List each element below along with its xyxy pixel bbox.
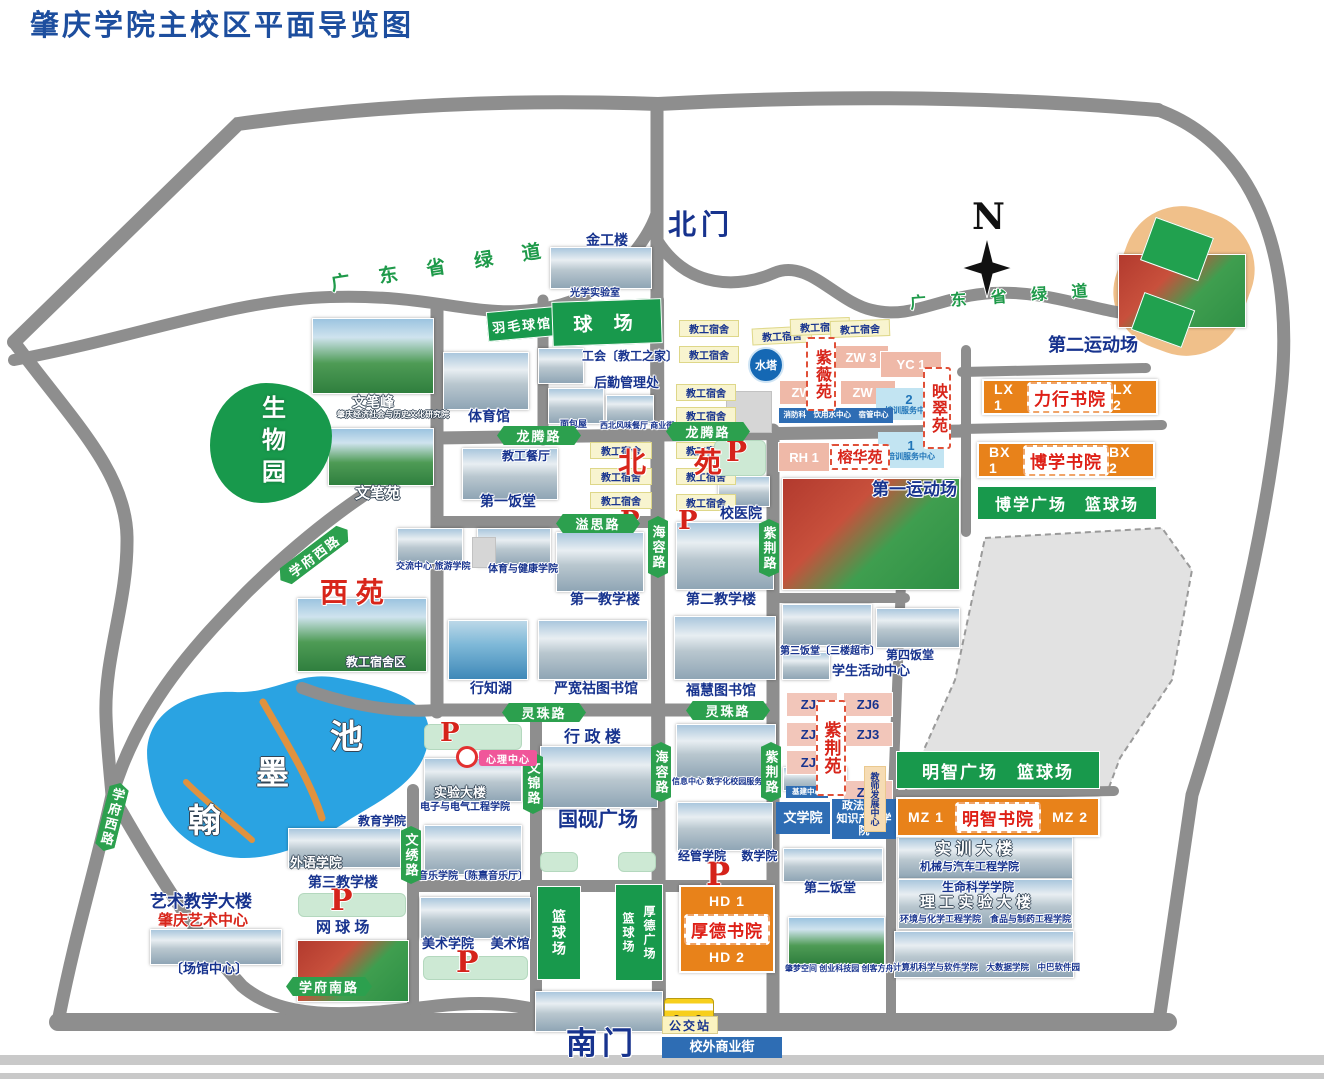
label-jixie: 机械与汽车工程学院	[920, 862, 1019, 874]
road-sign-wenxiulu: 文绣路	[401, 826, 421, 884]
area-boxue-square: 博学广场 篮球场	[977, 486, 1157, 520]
compass-north-label: N	[972, 196, 1005, 238]
road-sign-lingzhulu-2: 灵珠路	[686, 701, 770, 720]
label-canteen3: 第三饭堂〔三楼超市〕	[780, 647, 880, 658]
photo-music	[424, 825, 522, 875]
college-houde: HD 1厚德书院HD 2	[679, 885, 775, 973]
training-block-label: 培训服务中心	[887, 453, 935, 461]
label-xiaofang: 消防科 饮用水中心 宿管中心	[779, 408, 893, 423]
label-teaching3: 第三教学楼	[308, 875, 378, 890]
label-lake-han: 翰	[188, 804, 221, 839]
parking-yisi-2: P	[678, 508, 698, 534]
label-guoyan: 国砚广场	[558, 810, 638, 831]
label-tennis: 网 球 场	[316, 920, 369, 936]
label-teacher-dev: 教师发展中心	[864, 766, 886, 832]
parking-meishu: P	[456, 948, 479, 978]
photo-zhaomeng	[788, 917, 885, 965]
photo-shangyejie	[606, 395, 654, 424]
label-shixun: 实 训 大 楼	[935, 842, 1012, 859]
college-block-code: HD 2	[709, 949, 745, 965]
photo-jingonglou	[550, 247, 652, 289]
label-stadium1: 第一运动场	[872, 481, 957, 499]
road-sign-yisilu: 溢思路	[556, 514, 640, 533]
photo-teaching1	[556, 532, 644, 592]
psych-center-label: 心理中心	[479, 750, 537, 766]
road-west-curve	[14, 342, 127, 795]
road-sign-xuefunanlu: 学府南路	[286, 977, 372, 996]
label-fuhui: 福慧图书馆	[686, 683, 756, 698]
water-tower: 水塔	[748, 347, 784, 383]
faculty-dorm-label-2: 教工宿舍	[679, 346, 739, 363]
biology-garden-label: 生物园	[254, 395, 289, 491]
label-meishu: 美术学院 美术馆	[422, 937, 530, 951]
road-mingzhi	[893, 791, 1114, 795]
faculty-dorm-label-7: 教工宿舍	[676, 407, 736, 424]
college-block-code: LX 2	[1113, 381, 1146, 413]
photo-canteen4	[876, 608, 960, 648]
label-yanjiuyuan: 肇庆经济社会与历史文化研究院	[337, 411, 449, 419]
label-lake-mo: 墨	[256, 756, 289, 791]
photo-tiyuguan	[443, 352, 529, 410]
college-block-code: BX 1	[989, 444, 1023, 476]
road-sign-longtenglu-1: 龙腾路	[497, 426, 581, 445]
faculty-dorm-label-6: 教工宿舍	[676, 384, 736, 401]
label-optics-lab: 光学实验室	[570, 289, 620, 300]
college-block-code: MZ 2	[1052, 809, 1088, 825]
area-basketball-houde: 篮球场厚德广场	[615, 884, 663, 981]
campus-map: 肇庆学院主校区平面导览图 N 生物园羽毛球馆球 场博学广场 篮球场明智广场 篮球…	[0, 0, 1324, 1080]
college-block-code: BX 2	[1109, 444, 1143, 476]
label-sport-health: 体育与健康学院	[488, 565, 558, 576]
label-stadium2: 第二运动场	[1048, 336, 1138, 355]
label-yinyue: 音乐学院〔陈熹音乐厅〕	[418, 872, 528, 883]
label-wenbifeng: 文笔峰	[352, 395, 394, 410]
photo-xingzhihu	[448, 620, 528, 680]
label-art-building: 艺术教学大楼	[150, 893, 252, 911]
college-boxue: BX 1博学书院BX 2	[977, 442, 1155, 478]
label-xingzhihu: 行知湖	[470, 681, 512, 696]
label-ligong: 理 工 实 验 大 楼	[920, 895, 1031, 911]
road-sign-haironglu-2: 海容路	[651, 742, 671, 802]
college-block-code: MZ 1	[908, 809, 944, 825]
faculty-dorm-label-5: 教工宿舍	[830, 319, 891, 338]
college-block-code: HD 1	[709, 893, 745, 909]
road-lx-north	[962, 368, 1146, 372]
label-canteen2: 第二饭堂	[804, 881, 856, 895]
training-block-number: 2	[905, 393, 912, 407]
college-lixing: LX 1力行书院LX 2	[982, 379, 1158, 415]
parking-tennis: P	[330, 886, 353, 916]
label-canteen4: 第四饭堂	[886, 649, 934, 662]
label-hospital: 校医院	[720, 506, 762, 521]
road-sign-zijinglu-1: 紫荆路	[759, 519, 779, 577]
badge-zijingyuan: 紫荆苑	[816, 700, 846, 796]
label-huanjing: 环境与化学工程学院 食品与制药工程学院	[900, 915, 1071, 924]
label-houqin: 后勤管理处	[594, 376, 659, 390]
road-sign-longtenglu-2: 龙腾路	[666, 422, 750, 441]
photo-art-center	[150, 929, 282, 965]
bus-stop-label: 公交站	[662, 1016, 718, 1034]
label-waiyu: 外语学院	[290, 856, 342, 870]
badge-ronghuayuan: 榕华苑	[830, 444, 890, 470]
college-name-badge: 博学书院	[1023, 445, 1109, 476]
badge-ziweiyuan: 紫薇苑	[806, 337, 836, 411]
photo-fuhui-library	[674, 616, 776, 680]
college-name-badge: 明智书院	[955, 802, 1041, 833]
label-yankuanhu: 严宽祜图书馆	[554, 681, 638, 696]
block-rh1: RH 1	[778, 442, 830, 472]
photo-wenbifeng	[312, 318, 434, 394]
label-jisuanji: 计算机科学与软件学院 大数据学院 中巴软件园	[893, 963, 1080, 972]
label-tiyuguan: 体育馆	[468, 409, 510, 424]
green-area-label: 篮球场	[620, 912, 637, 954]
road-sign-haironglu-1: 海容路	[648, 516, 668, 578]
label-jiaoliu: 交流中心 旅游学院	[396, 562, 471, 571]
college-mingzhi: MZ 1明智书院MZ 2	[896, 797, 1100, 837]
area-ballfield: 球 场	[551, 298, 663, 347]
badge-yingcuiyuan: 映翠苑	[923, 367, 951, 449]
label-xiyuan: 西 苑	[320, 578, 384, 607]
label-student-center: 学生活动中心	[832, 664, 910, 678]
college-label-line: 校外商业街	[689, 1040, 754, 1055]
label-jingguan-math: 经管学院 数学院	[678, 850, 777, 863]
photo-wenbiyuan	[328, 428, 434, 486]
label-lake-chi: 池	[330, 720, 363, 755]
green-area-label: 厚德广场	[641, 905, 658, 961]
training-block-number: 1	[907, 439, 914, 453]
college-label-line: 文学院	[783, 811, 822, 826]
area-badminton-hall: 羽毛球馆	[486, 306, 558, 342]
road-lx-south	[962, 425, 1162, 429]
block-zj6: ZJ6	[843, 692, 893, 717]
label-admin: 行 政 楼	[564, 730, 621, 747]
photo-meishu	[420, 897, 531, 939]
label-changguan: 〔场馆中心〕	[170, 962, 248, 976]
photo-canteen3	[782, 604, 872, 646]
label-dorm-area: 教工宿舍区	[346, 656, 406, 669]
faculty-dorm-label-1: 教工宿舍	[679, 320, 739, 337]
label-jiaogong-canteen: 教工餐厅	[502, 450, 550, 463]
area-basketball-1: 篮球场	[537, 886, 581, 980]
block-zj3: ZJ3	[843, 722, 893, 747]
psych-center-icon	[456, 746, 478, 768]
parking-shiyan: P	[440, 720, 460, 746]
label-south-gate: 南门	[566, 1028, 638, 1061]
photo-jiaoliu	[397, 528, 463, 564]
label-jingonglou: 金工楼	[586, 233, 628, 248]
green-area-label: 篮球场	[549, 909, 569, 957]
label-wenxueyuan: 文学院	[776, 802, 830, 834]
label-gonghui: 工会〔教工之家〕	[582, 350, 678, 363]
label-shengming: 生命科学学院	[942, 881, 1014, 894]
label-north-gate: 北门	[668, 210, 734, 239]
road-boundary-northeast	[658, 98, 1158, 110]
label-wenbiyuan: 文笔苑	[355, 486, 400, 502]
photo-jingguan	[677, 802, 773, 851]
label-shangye-street: 校外商业街	[662, 1037, 782, 1058]
label-jiaoyu: 教育学院	[358, 815, 406, 828]
college-label-line: 消防科 饮用水中心 宿管中心	[784, 411, 889, 420]
label-first-canteen: 第一饭堂	[480, 494, 536, 509]
label-xibei: 西北风味餐厅 商业街	[600, 422, 674, 430]
page-title: 肇庆学院主校区平面导览图	[30, 2, 414, 44]
pad-guoyan-2	[618, 852, 656, 872]
label-teaching2: 第二教学楼	[686, 592, 756, 607]
college-name-badge: 力行书院	[1027, 382, 1113, 413]
road-sign-zijinglu-2: 紫荆路	[761, 742, 781, 802]
college-block-code: LX 1	[994, 381, 1027, 413]
label-teaching1: 第一教学楼	[570, 592, 640, 607]
label-art-center: 肇庆艺术中心	[158, 913, 248, 929]
photo-gonghui	[538, 348, 584, 384]
photo-admin	[540, 746, 658, 808]
label-shiyan: 实验大楼	[434, 786, 486, 800]
photo-canteen2	[783, 848, 883, 882]
photo-yankuanhu-library	[538, 620, 648, 680]
label-beiyuan: 北 苑	[618, 448, 742, 477]
label-zhaomeng: 肇梦空间 创业科技园 创客方舟	[785, 965, 893, 973]
pad-guoyan-1	[540, 852, 578, 872]
area-mingzhi-square: 明智广场 篮球场	[896, 751, 1100, 789]
college-name-badge: 厚德书院	[684, 914, 770, 945]
road-sign-lingzhulu-1: 灵珠路	[502, 703, 586, 722]
label-dianzi: 电子与电气工程学院	[420, 803, 510, 814]
parking-pad-shiyan	[424, 724, 522, 750]
